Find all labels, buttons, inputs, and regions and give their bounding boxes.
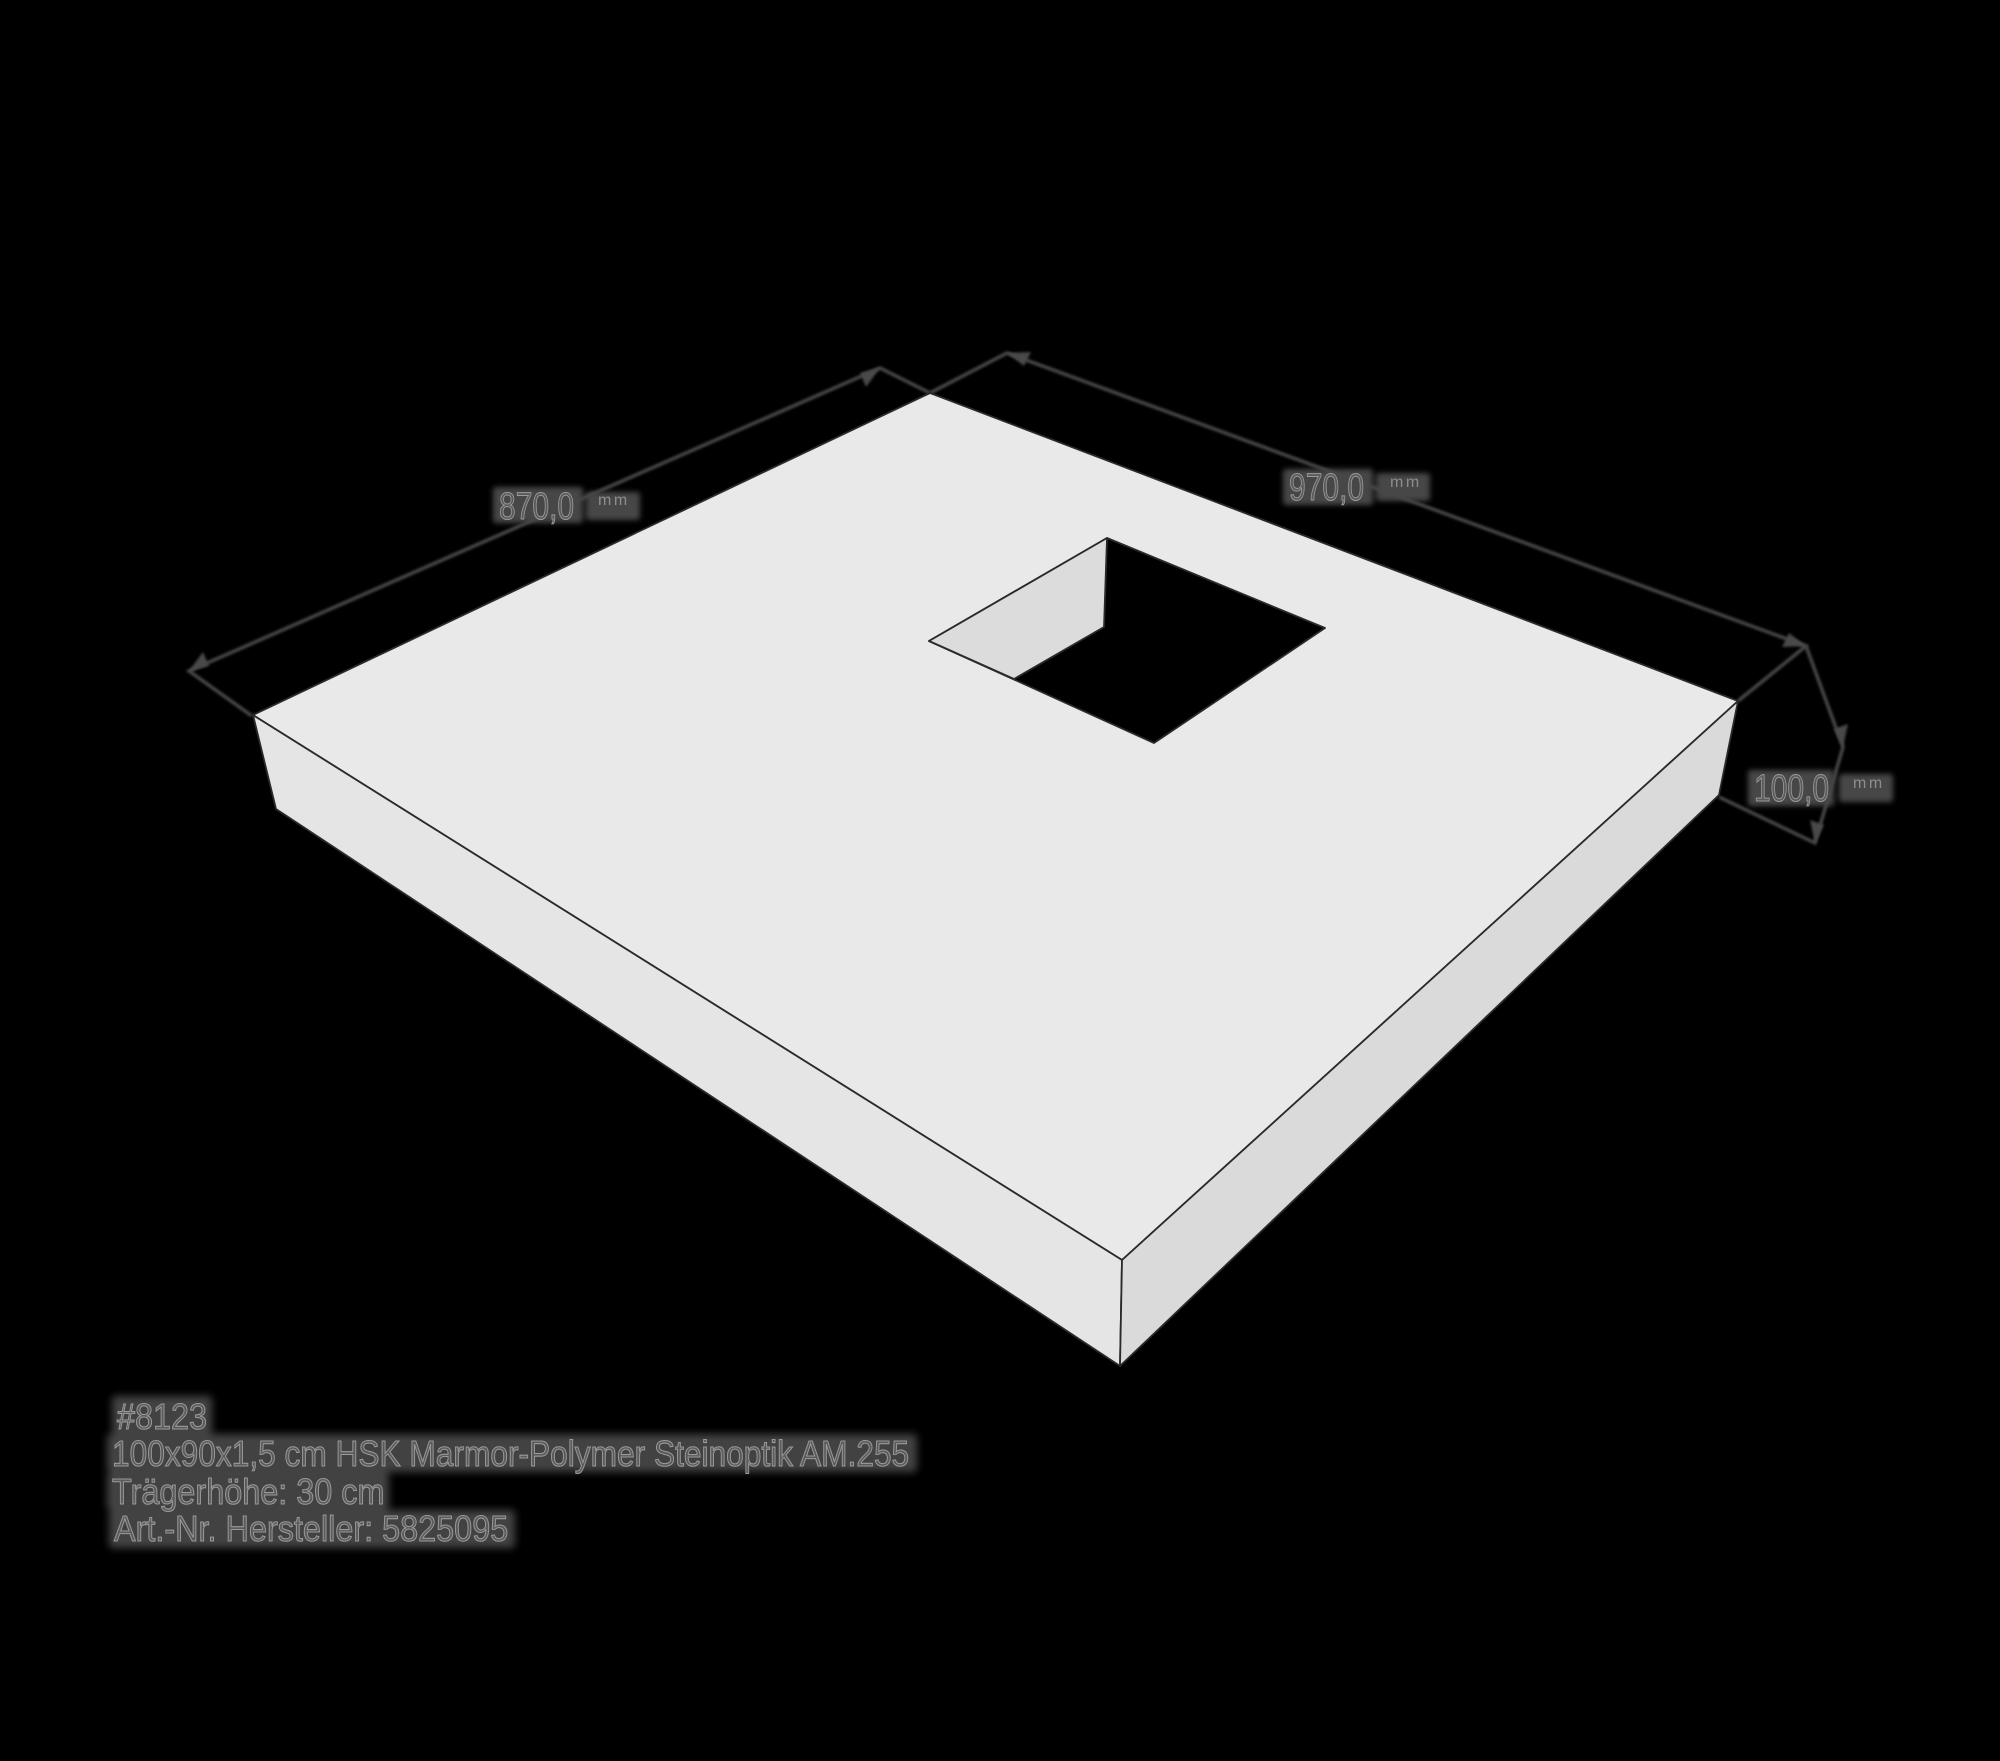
svg-text:870,0: 870,0: [499, 486, 574, 528]
svg-text:mm: mm: [1853, 775, 1885, 792]
svg-text:970,0: 970,0: [1289, 467, 1364, 509]
svg-text:Art.-Nr. Hersteller: 5825095: Art.-Nr. Hersteller: 5825095: [114, 1509, 508, 1549]
svg-text:mm: mm: [598, 492, 630, 509]
svg-text:Trägerhöhe: 30 cm: Trägerhöhe: 30 cm: [112, 1472, 384, 1512]
svg-text:100x90x1,5 cm HSK Marmor-Polym: 100x90x1,5 cm HSK Marmor-Polymer Steinop…: [112, 1434, 909, 1474]
svg-text:#8123: #8123: [117, 1397, 207, 1437]
svg-text:mm: mm: [1390, 474, 1422, 491]
svg-text:100,0: 100,0: [1754, 768, 1829, 810]
